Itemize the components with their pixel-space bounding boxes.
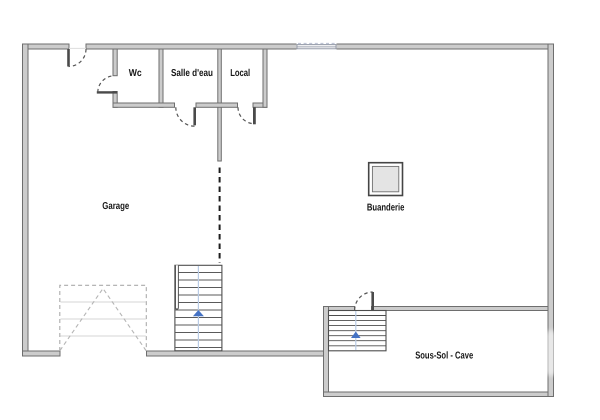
svg-text:Wc: Wc	[129, 68, 142, 79]
svg-text:Buanderie: Buanderie	[367, 202, 405, 213]
svg-text:Local: Local	[230, 68, 250, 79]
svg-text:Salle d'eau: Salle d'eau	[171, 68, 213, 79]
svg-text:Garage: Garage	[102, 201, 129, 212]
svg-text:Sous-Sol - Cave: Sous-Sol - Cave	[415, 350, 473, 361]
